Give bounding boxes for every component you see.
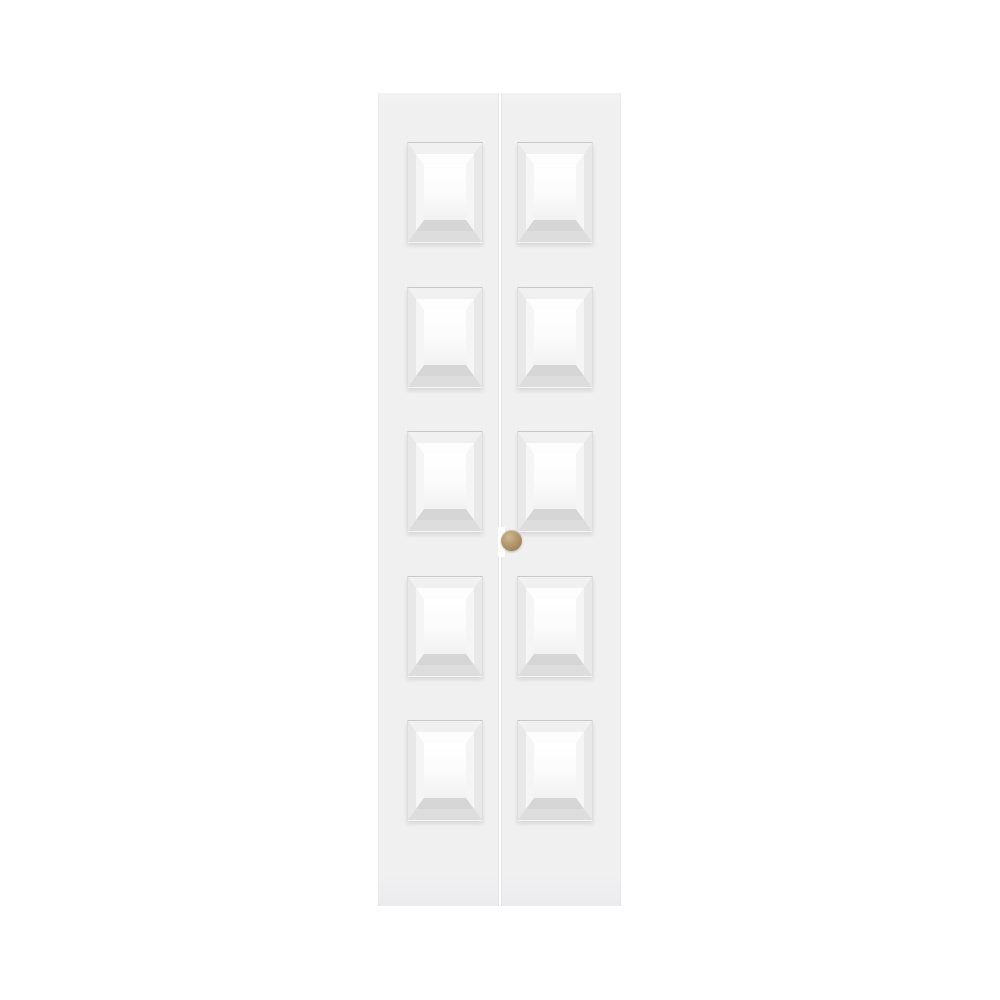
panel-bevel-inner [526, 588, 584, 665]
panel-column-right [517, 142, 593, 821]
panel-bevel-outer [518, 432, 592, 531]
panel-field [534, 454, 576, 509]
panel-bevel-inner [526, 732, 584, 809]
panel-bevel-outer [408, 432, 482, 531]
door-leaf-left [378, 93, 499, 906]
panel-bevel-inner [526, 443, 584, 520]
door-panel [407, 287, 483, 388]
panel-field [534, 165, 576, 220]
panel-bevel-outer [408, 721, 482, 820]
panel-field [424, 454, 466, 509]
door-panel [517, 720, 593, 821]
door-panel [517, 142, 593, 243]
panel-bevel-inner [416, 443, 474, 520]
door-panel [407, 431, 483, 532]
panel-bevel-outer [518, 143, 592, 242]
panel-bevel-outer [518, 721, 592, 820]
product-image [0, 0, 1000, 1000]
panel-bevel-outer [408, 577, 482, 676]
door-panel [407, 142, 483, 243]
panel-bevel-inner [416, 732, 474, 809]
door-leaf-right [501, 93, 622, 906]
panel-field [424, 599, 466, 654]
panel-bevel-outer [518, 288, 592, 387]
panel-bevel-outer [408, 143, 482, 242]
door-panel [517, 431, 593, 532]
panel-column-left [407, 142, 483, 821]
door-panel [407, 576, 483, 677]
panel-bevel-outer [408, 288, 482, 387]
door-panel [517, 287, 593, 388]
bifold-door [378, 93, 621, 906]
panel-bevel-inner [526, 154, 584, 231]
panel-bevel-inner [416, 588, 474, 665]
panel-bevel-inner [416, 154, 474, 231]
panel-bevel-inner [416, 299, 474, 376]
panel-bevel-inner [526, 299, 584, 376]
panel-bevel-outer [518, 577, 592, 676]
panel-field [534, 743, 576, 798]
door-knob [501, 530, 522, 551]
door-panel [407, 720, 483, 821]
panel-field [534, 599, 576, 654]
panel-field [424, 743, 466, 798]
panel-field [534, 310, 576, 365]
panel-field [424, 165, 466, 220]
panel-field [424, 310, 466, 365]
door-panel [517, 576, 593, 677]
